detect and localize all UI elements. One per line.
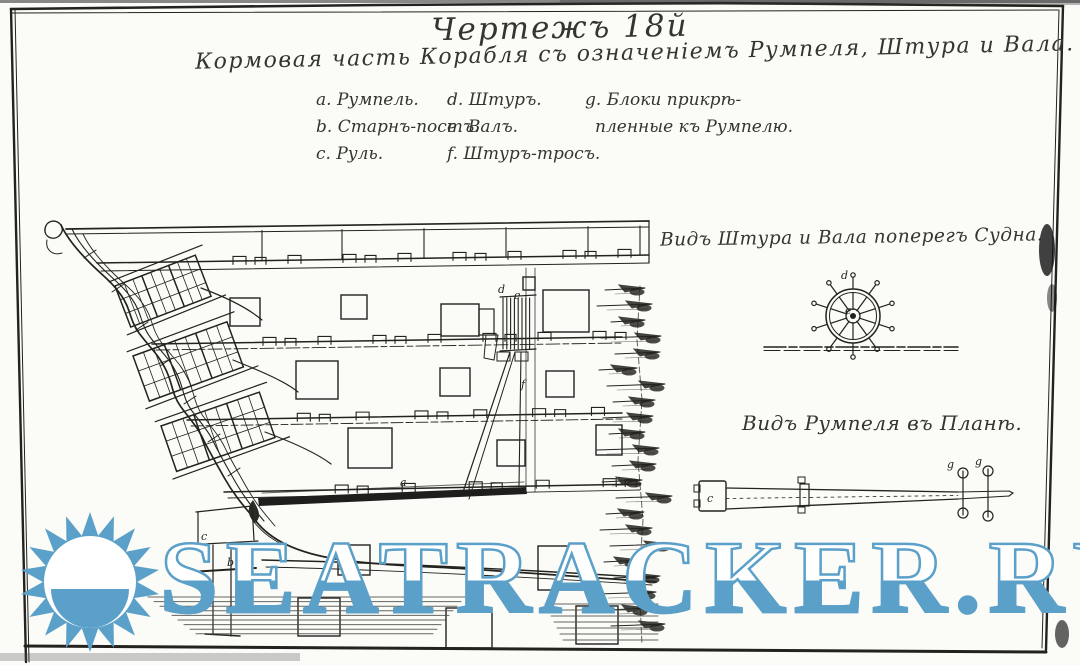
- timber-notches: [233, 249, 636, 493]
- label-g-block1: g: [947, 458, 954, 471]
- label-e-side: e: [514, 289, 521, 302]
- legend-item-g-line2: пленные къ Румпелю.: [595, 114, 793, 141]
- label-e-hub: e: [845, 304, 852, 317]
- tiller-view-caption: Видъ Румпеля въ Планѣ.: [742, 411, 1022, 435]
- label-a-tiller: a: [400, 476, 407, 489]
- deck-lines: [152, 337, 656, 585]
- stern-gallery-windows: [107, 244, 290, 479]
- stern-profile: [45, 221, 275, 526]
- legend-column-2: d. Штуръ. e. Валъ. f. Штуръ-тросъ.: [447, 87, 600, 168]
- legend-column-3: g. Блоки прикрѣ- пленные къ Румпелю.: [585, 87, 793, 141]
- poop-rails: [66, 221, 649, 271]
- scanned-plate: d e f a b c d e c g g Чертежъ 18й Кормов…: [0, 0, 1080, 665]
- legend-item-e: e. Валъ.: [447, 114, 600, 141]
- water-hatching: [148, 597, 658, 640]
- tiller-plan-view: [694, 466, 1013, 521]
- legend-item-f: f. Штуръ-тросъ.: [447, 141, 600, 168]
- label-d-wheel: d: [841, 269, 848, 282]
- steering-gear: [258, 268, 536, 506]
- label-c-plan: c: [707, 492, 713, 505]
- label-g-block2: g: [975, 455, 982, 468]
- legend-item-d: d. Штуръ.: [447, 87, 600, 114]
- label-d-side: d: [498, 283, 505, 296]
- gunports: [230, 277, 622, 648]
- ship-wheel-view: [764, 273, 958, 359]
- label-b-sternpost: b: [227, 556, 234, 569]
- label-c-rudder: c: [201, 530, 207, 543]
- legend-item-g-line1: g. Блоки прикрѣ-: [585, 87, 793, 114]
